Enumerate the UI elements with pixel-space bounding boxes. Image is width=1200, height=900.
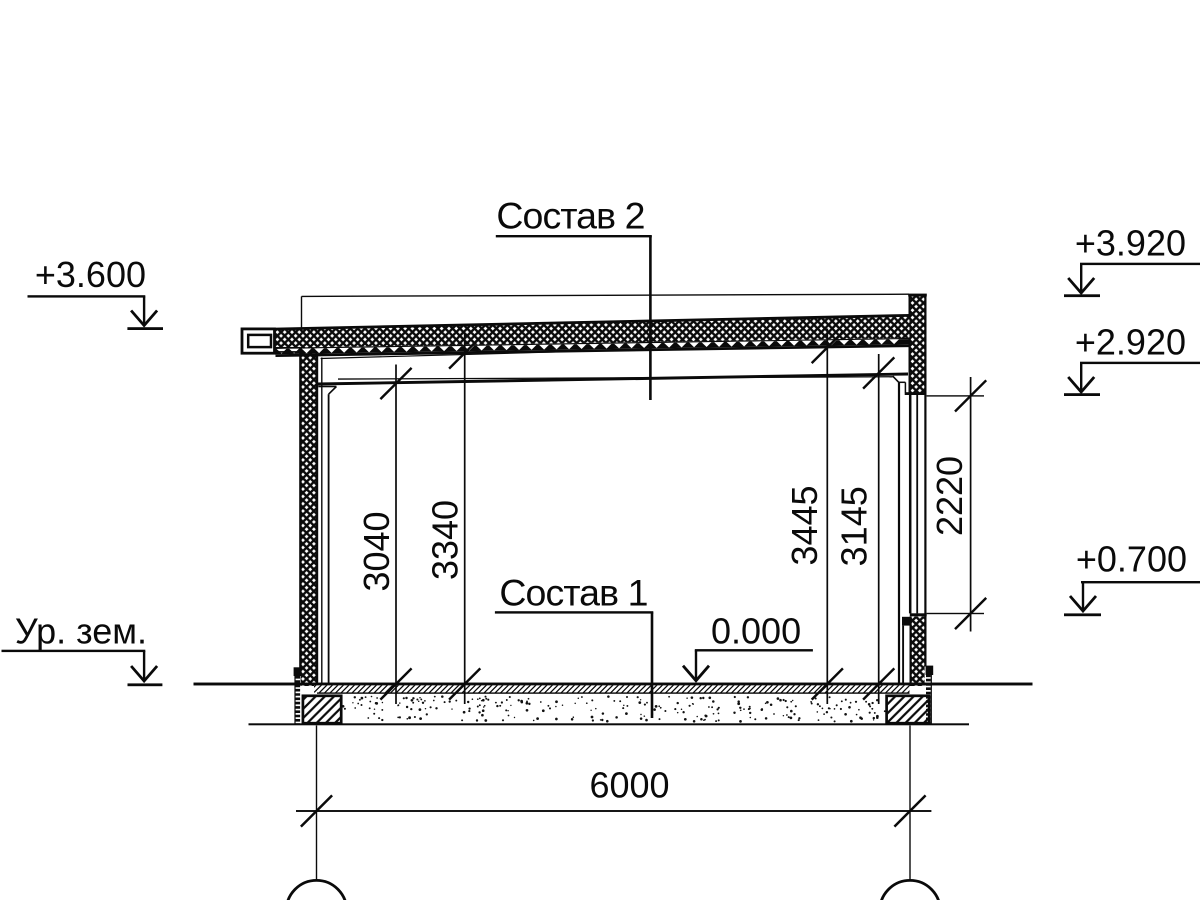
svg-text:Состав 1: Состав 1 <box>499 572 647 614</box>
svg-text:3445: 3445 <box>784 485 825 565</box>
svg-text:0.000: 0.000 <box>711 611 801 652</box>
svg-text:+3.600: +3.600 <box>35 254 146 295</box>
svg-text:3340: 3340 <box>425 500 466 580</box>
svg-text:Ур. зем.: Ур. зем. <box>15 611 147 652</box>
svg-text:Состав 2: Состав 2 <box>496 195 644 237</box>
svg-text:+2.920: +2.920 <box>1075 322 1186 363</box>
svg-text:3040: 3040 <box>356 511 397 591</box>
svg-text:+0.700: +0.700 <box>1076 539 1187 580</box>
svg-text:+3.920: +3.920 <box>1075 223 1186 264</box>
svg-text:6000: 6000 <box>589 765 669 806</box>
svg-text:2220: 2220 <box>929 456 970 536</box>
svg-text:3145: 3145 <box>834 486 875 566</box>
